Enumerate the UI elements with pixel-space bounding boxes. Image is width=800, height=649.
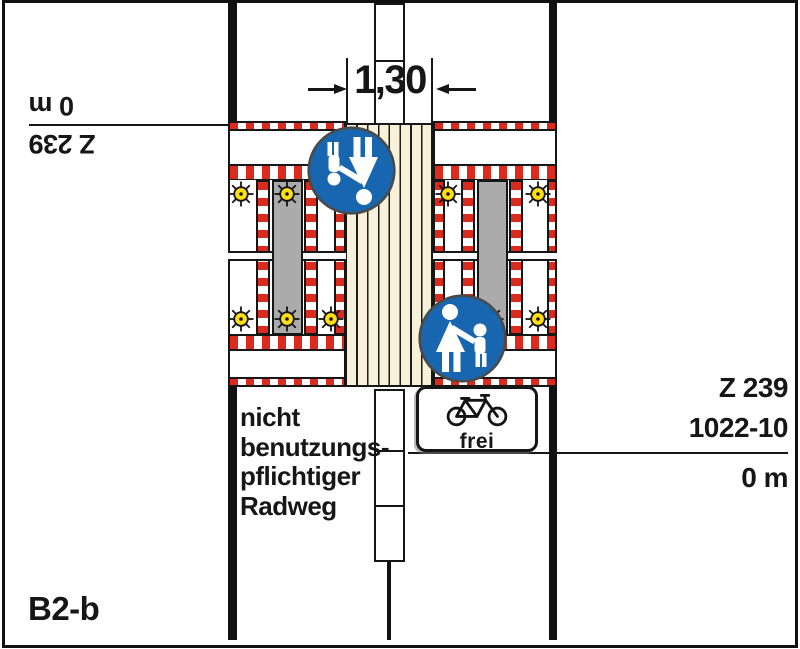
warning-lamp-icon: [525, 181, 551, 207]
distance-value: 0 m: [29, 88, 228, 124]
warning-lamp-icon: [525, 306, 551, 332]
barrier-joint: [508, 251, 557, 261]
barrier-board: [433, 129, 557, 166]
barrier-joint: [303, 251, 346, 261]
warning-lamp-icon: [274, 306, 300, 332]
station-label-left: Z 239 0 m: [29, 88, 228, 162]
regelplan-diagram: 1,30 Z 239 0 m Z 239 1022-10 0 m nicht b…: [0, 0, 800, 649]
barrier-joint: [433, 251, 477, 261]
barrier-rail-icon: [228, 377, 346, 387]
note-line: nicht: [240, 403, 430, 433]
plan-code: B2-b: [28, 590, 99, 628]
road-axis-line: [387, 561, 391, 640]
pedestrian-sign-icon: [417, 293, 508, 384]
warning-lamp-icon: [228, 306, 254, 332]
dimension-arrow-line: [448, 88, 476, 91]
bicycle-frei-plate: frei: [416, 386, 538, 452]
note-line: pflichtiger: [240, 462, 430, 492]
bicycle-icon: [438, 391, 516, 427]
barrier-rail-icon: [433, 164, 557, 181]
roadway-note: nicht benutzungs- pflichtiger Radweg: [240, 403, 430, 521]
warning-lamp-icon: [318, 306, 344, 332]
dimension-arrow-line: [308, 88, 336, 91]
dimension-value: 1,30: [340, 58, 440, 103]
distance-value: 0 m: [408, 454, 788, 498]
barrier-board: [228, 349, 346, 379]
warning-lamp-icon: [274, 181, 300, 207]
warning-lamp-icon: [228, 181, 254, 207]
note-line: Radweg: [240, 492, 430, 522]
sign-reference: Z 239: [29, 124, 228, 162]
frei-label: frei: [419, 432, 535, 452]
barrier-joint: [228, 251, 273, 261]
road-axis-dash: [374, 3, 405, 62]
note-line: benutzungs-: [240, 433, 430, 463]
warning-lamp-icon: [435, 181, 461, 207]
pedestrian-sign-inverted-icon: [306, 125, 397, 216]
